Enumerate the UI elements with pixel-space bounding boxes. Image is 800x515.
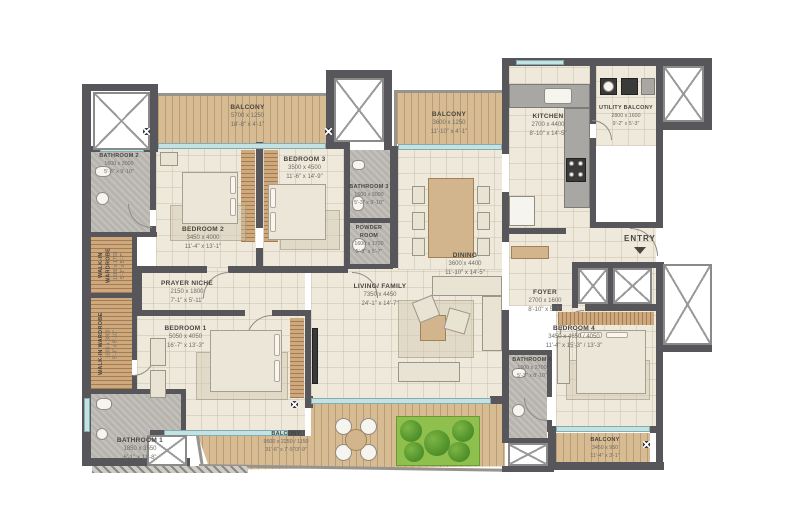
deck-balcony-top-left — [158, 96, 326, 143]
balcony-table — [345, 429, 367, 451]
wall-segment — [150, 84, 158, 152]
wall-segment — [256, 142, 263, 228]
toilet — [95, 166, 111, 177]
toilet — [512, 404, 525, 417]
burner — [578, 161, 583, 166]
pillow — [606, 332, 628, 338]
washer-door — [603, 81, 614, 92]
sink — [352, 160, 365, 170]
wall-segment — [326, 70, 334, 148]
dining-chair — [412, 212, 425, 230]
shaft — [508, 443, 548, 466]
window — [311, 398, 491, 404]
window — [158, 143, 326, 149]
window — [516, 60, 564, 65]
wall-segment — [502, 228, 566, 234]
column-marker — [325, 128, 332, 135]
window — [84, 398, 90, 432]
burner — [578, 172, 583, 177]
wardrobe-unit — [290, 318, 304, 398]
sink — [512, 368, 526, 378]
wall-segment — [656, 122, 712, 130]
entry-arrow-icon — [634, 247, 646, 254]
wall-segment — [585, 304, 664, 311]
sink — [96, 192, 109, 205]
shaft — [663, 264, 712, 345]
deck-balcony-bottom-right — [556, 433, 650, 462]
wall-segment — [326, 142, 346, 149]
dining-chair — [477, 212, 490, 230]
utility-sink — [641, 78, 655, 95]
bench — [150, 370, 166, 398]
plant — [404, 442, 424, 462]
pillow — [580, 332, 602, 338]
refrigerator — [509, 196, 535, 226]
wall-segment — [502, 192, 509, 242]
wall-segment — [590, 66, 596, 124]
wall-segment — [384, 70, 392, 150]
kitchen-sink — [544, 88, 572, 104]
bed-bedroom1 — [210, 330, 282, 392]
wall-segment — [656, 122, 663, 228]
wall-segment — [228, 266, 348, 273]
wall-segment — [326, 70, 392, 78]
column-marker — [143, 128, 150, 135]
pillow — [230, 176, 236, 194]
sofa — [432, 276, 502, 296]
toilet — [96, 398, 112, 410]
column-marker — [291, 401, 298, 408]
plant — [400, 420, 422, 442]
burner — [569, 172, 574, 177]
toilet — [352, 196, 364, 211]
wall-segment — [91, 232, 157, 237]
dining-chair — [477, 186, 490, 204]
wall-segment — [502, 58, 509, 154]
wall-segment — [704, 58, 712, 130]
dining-chair — [412, 186, 425, 204]
shaft — [613, 268, 652, 304]
wall-segment — [348, 218, 390, 223]
wall-segment — [137, 310, 245, 316]
balcony-rail — [155, 93, 333, 96]
nightstand — [160, 152, 178, 166]
shaft — [578, 268, 608, 304]
wall-segment — [656, 58, 663, 130]
shaft — [147, 435, 187, 466]
wall-segment — [552, 304, 562, 311]
bed-bedroom4 — [576, 330, 646, 394]
entry-label: ENTRY — [624, 234, 656, 243]
tv-console — [312, 328, 318, 384]
wall-segment — [590, 138, 596, 228]
wall-segment — [288, 430, 305, 436]
wall-segment — [656, 262, 663, 310]
wall-segment — [502, 310, 509, 442]
shaft — [334, 78, 384, 142]
floor-wardrobe-upper — [91, 237, 132, 293]
wall-segment — [137, 266, 142, 316]
pillow — [270, 212, 276, 232]
plant — [448, 442, 470, 462]
plant — [424, 430, 450, 456]
wall-segment — [344, 142, 350, 268]
wall-segment — [348, 264, 393, 269]
wall-segment — [137, 266, 207, 273]
sofa-chaise — [482, 296, 502, 351]
wall-segment — [502, 350, 552, 355]
sofa — [398, 362, 460, 382]
wall-segment — [502, 466, 554, 472]
wall-segment — [656, 304, 663, 466]
plant — [452, 420, 474, 442]
pillow — [274, 334, 280, 356]
sink — [96, 428, 108, 440]
wall-segment — [590, 222, 663, 228]
wall-segment — [256, 248, 263, 266]
dining-chair — [477, 238, 490, 256]
pillow — [270, 188, 276, 208]
wall-segment — [390, 146, 398, 268]
column-marker — [643, 441, 650, 448]
burner — [569, 161, 574, 166]
bench — [150, 338, 166, 366]
wall-segment — [305, 310, 311, 402]
wall-segment — [150, 152, 156, 210]
pillow — [274, 360, 280, 382]
floor-plan: BALCONY 5700 x 1250 18'-8" x 4'-1" BATHR… — [0, 0, 800, 515]
wall-segment — [650, 426, 657, 433]
wall-segment — [547, 355, 552, 397]
shaft — [663, 66, 704, 122]
window — [556, 426, 650, 432]
floor-wardrobe-lower — [91, 298, 132, 389]
dining-chair — [412, 238, 425, 256]
deck-balcony-top-center — [397, 93, 502, 144]
wardrobe-unit — [558, 312, 654, 325]
balcony-rail — [394, 90, 397, 146]
wall-segment — [91, 293, 137, 298]
toilet — [352, 238, 366, 252]
bed-bedroom3 — [268, 184, 326, 240]
dresser — [557, 336, 570, 384]
wall-segment — [656, 345, 712, 352]
shaft — [93, 92, 150, 150]
dining-table — [428, 178, 474, 258]
balcony-rail — [394, 90, 505, 93]
wall-hatch — [92, 466, 248, 473]
dryer — [621, 78, 638, 95]
foyer-bench — [511, 246, 549, 259]
wall-segment — [82, 84, 158, 91]
wall-segment — [548, 462, 664, 470]
window — [398, 144, 502, 150]
wall-segment — [91, 389, 186, 394]
pillow — [230, 198, 236, 216]
